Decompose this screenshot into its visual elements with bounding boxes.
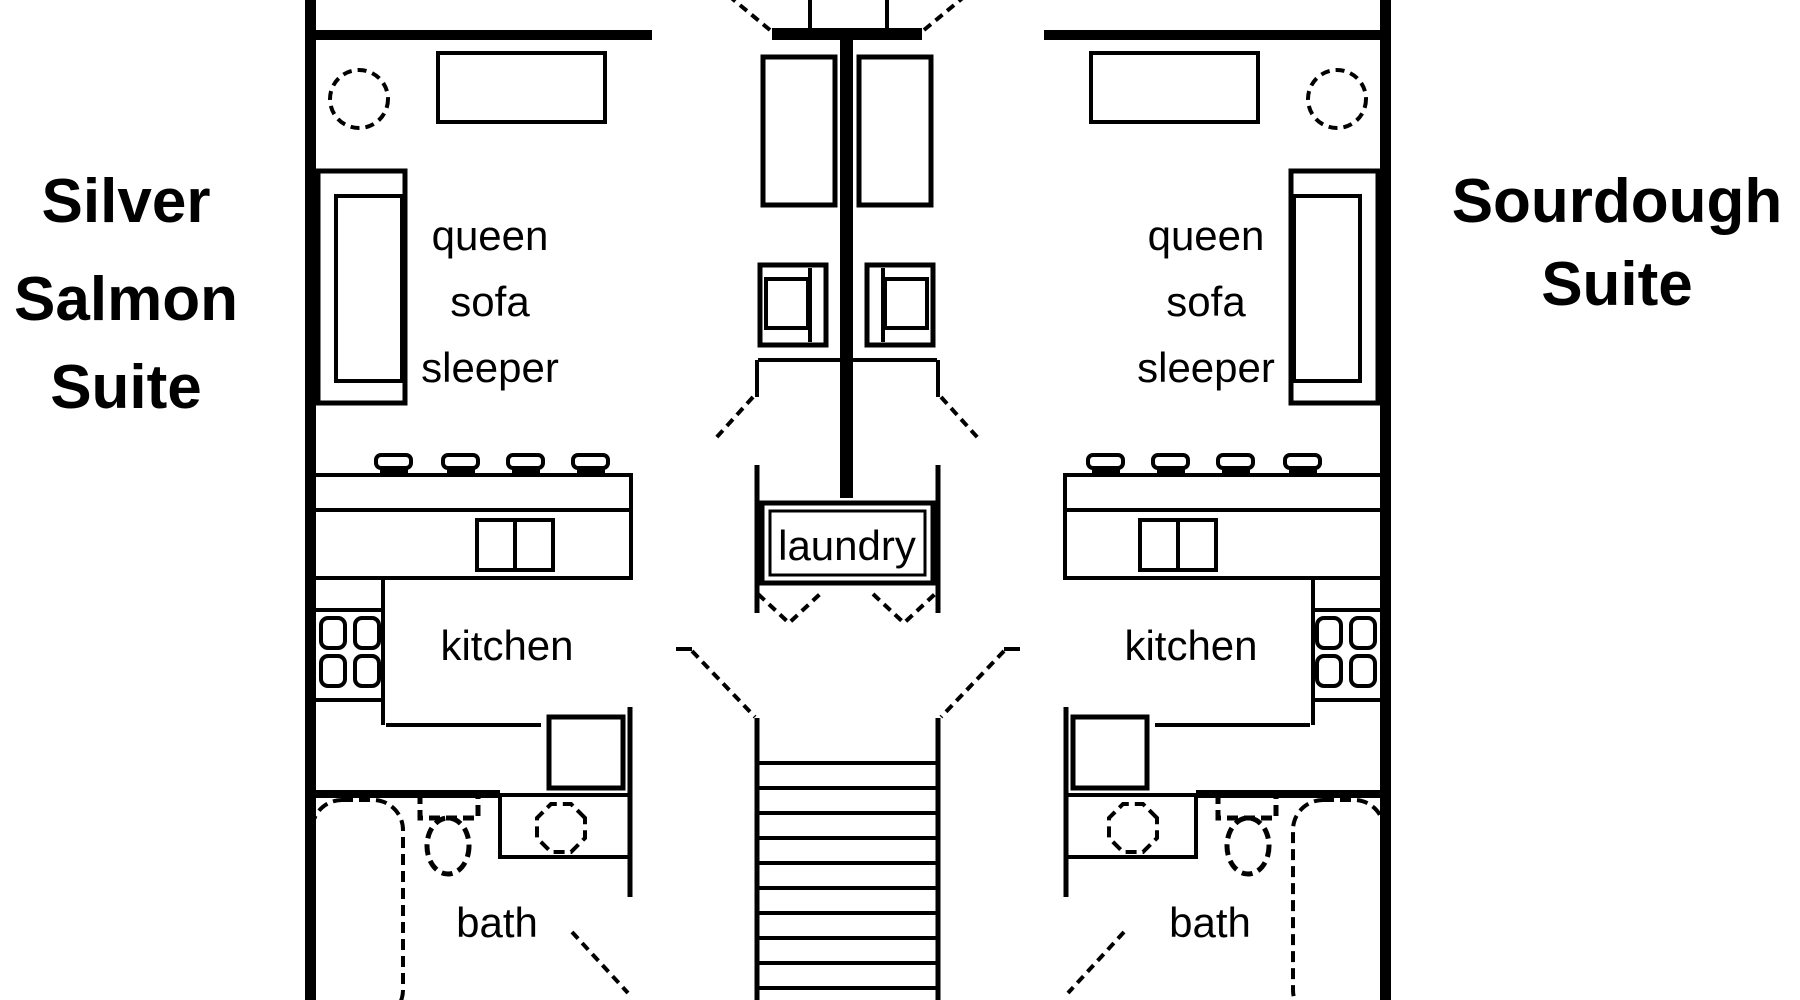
dryer-icon (867, 265, 933, 345)
laundry-label: laundry (778, 522, 916, 569)
right-toilet-icon (1218, 795, 1276, 874)
laundry-right-door-swing (941, 397, 978, 438)
left-title-line-3: Suite (50, 353, 202, 422)
left-title-line-1: Silver (42, 167, 211, 236)
right-table-icon (1308, 70, 1366, 128)
left-entry-door-swing (729, 0, 770, 30)
left-suite-top-wall (305, 30, 652, 40)
left-bathtub-icon (312, 800, 403, 1000)
left-toilet-icon (420, 795, 478, 874)
left-dresser-icon (438, 53, 605, 122)
right-sofa-label-line-1: queen (1148, 212, 1265, 259)
left-suite-title: Silver Salmon Suite (14, 167, 238, 422)
right-title-line-2: Suite (1541, 250, 1693, 319)
floor-plan: Silver Salmon Suite Sourdough Suite quee… (0, 0, 1800, 1000)
right-suite: queen sofa sleeper kitchen (1065, 53, 1384, 1000)
left-dishwasher-icon (549, 717, 623, 788)
left-bath-door-swing (572, 932, 628, 993)
right-title-line-1: Sourdough (1452, 167, 1783, 236)
right-bath-room (1066, 707, 1384, 1000)
left-sofa-sleeper-icon (318, 171, 405, 403)
right-bath-label: bath (1169, 899, 1251, 946)
left-sofa-label-line-1: queen (432, 212, 549, 259)
laundry-bifold-left (758, 594, 820, 623)
left-stove-icon (312, 610, 383, 700)
left-bath-wall (305, 790, 500, 798)
right-sofa-label-line-2: sofa (1166, 278, 1246, 325)
party-wall (840, 30, 853, 498)
right-suite-top-wall (1044, 30, 1391, 40)
right-sofa-label: queen sofa sleeper (1137, 212, 1275, 391)
right-bar-stools (1088, 455, 1320, 475)
right-dishwasher-icon (1073, 717, 1147, 788)
left-suite: queen sofa sleeper kitchen (312, 53, 631, 1000)
left-kitchen-counter (312, 475, 631, 578)
staircase-icon (757, 718, 938, 1000)
left-sofa-label-line-2: sofa (450, 278, 530, 325)
right-stove-icon (1313, 610, 1384, 700)
stair-hall (676, 649, 1020, 717)
right-bathtub-icon (1293, 800, 1384, 1000)
left-table-icon (330, 70, 388, 128)
right-entry-door-swing (924, 0, 965, 30)
right-sofa-sleeper-icon (1291, 171, 1378, 403)
right-kitchen-counter (1065, 475, 1384, 578)
left-bar-stools (376, 455, 608, 475)
left-sofa-label-line-3: sleeper (421, 344, 559, 391)
left-title-line-2: Salmon (14, 265, 238, 334)
right-vanity-icon (1066, 795, 1196, 857)
right-kitchen-sink-icon (1140, 520, 1216, 570)
right-suite-title: Sourdough Suite (1452, 167, 1783, 319)
washer-icon (760, 265, 826, 345)
laundry-bifold-right (873, 594, 935, 623)
left-sofa-label: queen sofa sleeper (421, 212, 559, 391)
laundry-left-door-swing (716, 397, 753, 438)
right-bath-door-swing (1068, 932, 1124, 993)
left-vanity-icon (500, 795, 630, 857)
right-dresser-icon (1091, 53, 1258, 122)
left-kitchen-sink-icon (477, 520, 553, 570)
right-closet-icon (859, 57, 931, 205)
left-closet-icon (763, 57, 835, 205)
left-kitchen-label: kitchen (440, 622, 573, 669)
entry-area (729, 0, 965, 30)
left-bath-room (312, 707, 630, 1000)
floor-plan-page: Silver Salmon Suite Sourdough Suite quee… (0, 0, 1800, 1000)
right-kitchen-label: kitchen (1124, 622, 1257, 669)
right-sofa-label-line-3: sleeper (1137, 344, 1275, 391)
left-bath-label: bath (456, 899, 538, 946)
